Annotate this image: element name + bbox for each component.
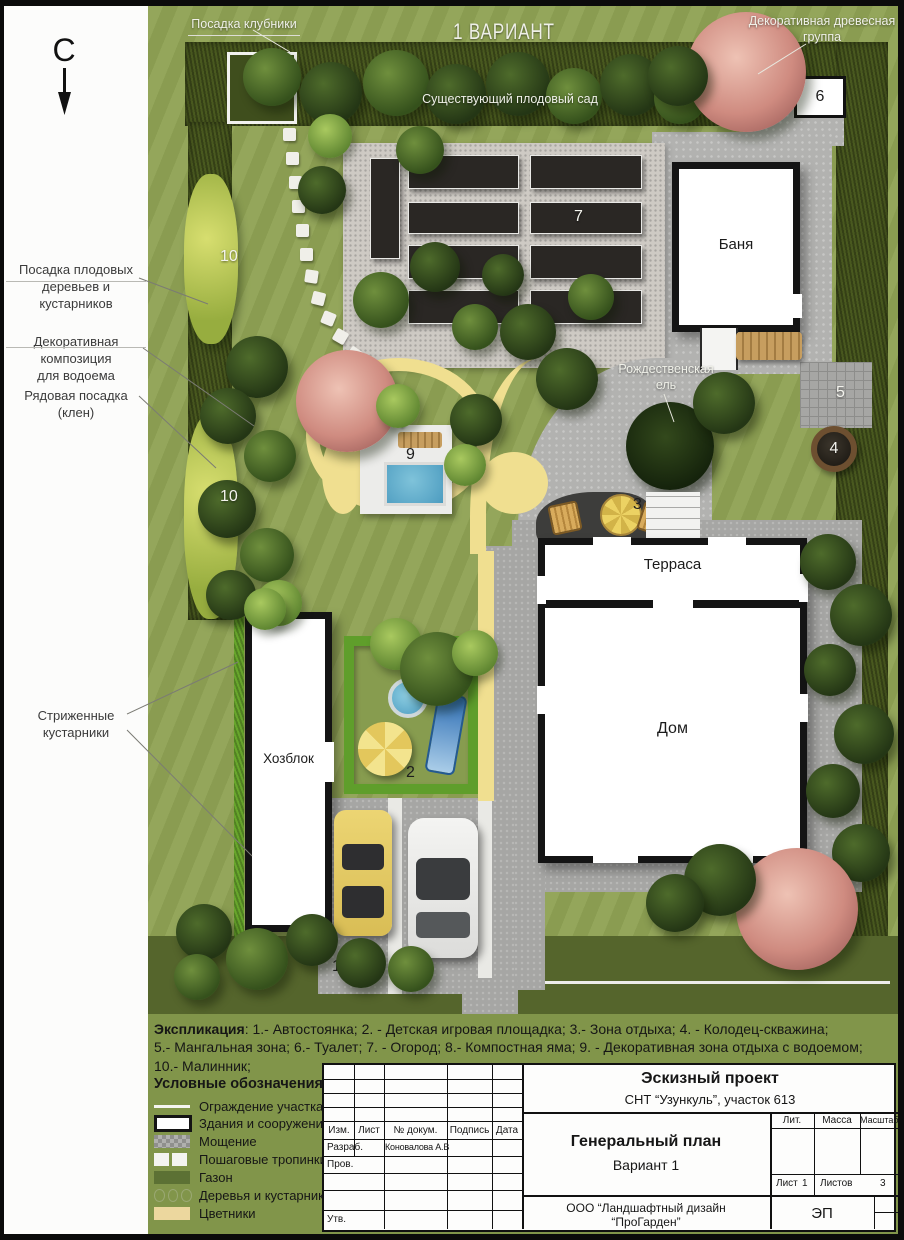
garden-bed — [408, 202, 519, 234]
margin-label-fruit-trees: Посадка плодовыхдеревьев и кустарников — [6, 262, 146, 313]
legend-item-buildings: Здания и сооружения — [154, 1115, 330, 1131]
company-line1: ООО “Ландшафтный дизайн — [522, 1201, 770, 1215]
paving-swatch-icon — [154, 1135, 192, 1148]
legend-item-trees: Деревья и кустарники — [154, 1187, 331, 1203]
stepping-stone — [320, 310, 337, 327]
explication-line2: 5.- Мангальная зона; 6.- Туалет; 7. - Ог… — [154, 1038, 894, 1056]
col-list: Лист — [354, 1125, 384, 1136]
hozblok-building — [245, 612, 332, 932]
trimmed-hedge-strip — [234, 600, 244, 940]
garden-bed — [370, 158, 400, 259]
marker-rest-zone: 3 — [633, 496, 642, 514]
tree — [452, 304, 498, 350]
scale-label: Масштаб — [860, 1115, 898, 1125]
tree — [648, 46, 708, 106]
project-object: СНТ “Узункуль”, участок 613 — [522, 1092, 898, 1107]
tree — [243, 48, 301, 106]
garden-bed — [530, 155, 642, 189]
tree — [834, 704, 894, 764]
house-building — [538, 538, 807, 863]
col-doc: № докум. — [384, 1125, 447, 1136]
stage-label: ЭП — [770, 1205, 874, 1222]
margin-rule — [6, 347, 146, 348]
stepping-stone — [296, 224, 309, 237]
house-window — [593, 854, 638, 863]
sheet-label: Лист — [776, 1178, 798, 1189]
tree — [646, 874, 704, 932]
marker-playground: 2 — [406, 764, 415, 782]
explication-heading: Экспликация — [154, 1021, 245, 1037]
stepping-stone — [300, 248, 313, 261]
drawing-sheet: С Посадка плодовыхдеревьев и кустарников… — [0, 0, 904, 1240]
variant-title: 1 ВАРИАНТ — [453, 18, 555, 46]
fence-swatch-icon — [154, 1100, 192, 1113]
legend-item-lawn: Газон — [154, 1169, 233, 1185]
marker-raspberry-top: 10 — [220, 248, 238, 266]
tree-group-label: Декоративная древеснаягруппа — [748, 14, 896, 45]
tree — [568, 274, 614, 320]
stepping-stone — [311, 291, 327, 307]
entrance-road — [462, 978, 518, 1014]
rest-chair — [547, 500, 583, 536]
row-razrab: Разраб. — [327, 1142, 363, 1153]
tree — [830, 584, 892, 646]
tree — [298, 166, 346, 214]
hozblok-label: Хозблок — [245, 751, 332, 766]
explication-line1: : 1.- Автостоянка; 2. - Детская игровая … — [245, 1021, 829, 1037]
project-type: Эскизный проект — [522, 1070, 898, 1088]
tree — [174, 954, 220, 1000]
legend-item-fence: Ограждение участка — [154, 1098, 323, 1114]
yellow-car — [334, 810, 392, 936]
col-date: Дата — [492, 1125, 522, 1136]
deck-bench — [398, 432, 442, 448]
house-label: Дом — [538, 720, 807, 738]
tree — [240, 528, 294, 582]
col-sign: Подпись — [447, 1125, 492, 1136]
orchard-label: Существующий плодовый сад — [400, 92, 620, 108]
marker-raspberry-bottom: 10 — [220, 488, 238, 506]
tree — [396, 126, 444, 174]
banya-window — [793, 294, 802, 318]
tree — [286, 914, 338, 966]
well: 4 — [811, 426, 857, 472]
fence-line — [516, 981, 890, 984]
marker-well: 4 — [830, 440, 839, 458]
pond — [384, 462, 446, 506]
master-plan: 8 6 7 Баня 5 4 9 — [148, 6, 898, 1014]
house-window — [537, 686, 546, 714]
tree — [244, 430, 296, 482]
stepping-stone — [283, 128, 296, 141]
parking-stripe — [478, 798, 492, 994]
tree — [176, 904, 232, 960]
tree — [353, 272, 409, 328]
sheets-label: Листов — [820, 1178, 853, 1189]
legend-item-paving: Мощение — [154, 1133, 257, 1149]
margin-label-maple-row: Рядовая посадка (клен) — [6, 388, 146, 422]
flowerbed-blob — [480, 452, 548, 514]
banya-label: Баня — [672, 236, 800, 253]
strawberry-label: Посадка клубники — [188, 17, 300, 36]
umbrella — [358, 722, 412, 776]
house-window — [593, 537, 631, 546]
spruce-label: Рождественскаяель — [610, 362, 722, 393]
drawing-title: Генеральный план — [522, 1133, 770, 1151]
sheets-num: 3 — [880, 1178, 886, 1189]
marker-garden: 7 — [574, 208, 583, 226]
variant-label: Вариант 1 — [522, 1157, 770, 1173]
white-car — [408, 818, 478, 958]
tree — [800, 534, 856, 590]
tree — [452, 630, 498, 676]
marker-bbq: 5 — [836, 384, 845, 402]
tree — [450, 394, 502, 446]
stepping-stone — [286, 152, 299, 165]
buildings-swatch-icon — [154, 1117, 192, 1130]
tree — [376, 384, 420, 428]
tree — [804, 644, 856, 696]
row-prov: Пров. — [327, 1159, 353, 1170]
terrace-label: Терраса — [538, 556, 807, 573]
lit-label: Лит. — [770, 1115, 814, 1126]
tree — [500, 304, 556, 360]
tree — [536, 348, 598, 410]
tree — [444, 444, 486, 486]
flowerbed-band — [478, 551, 494, 801]
tree — [806, 764, 860, 818]
col-izm: Изм. — [324, 1125, 354, 1136]
tree — [244, 588, 286, 630]
company-line2: “ПроГарден” — [522, 1215, 770, 1229]
tree — [336, 938, 386, 988]
lawn-swatch-icon — [154, 1171, 192, 1184]
margin-label-trimmed-shrubs: Стриженныекустарники — [6, 708, 146, 742]
razrab-name: Коновалова А.В — [385, 1142, 447, 1152]
north-letter: С — [44, 32, 84, 69]
tree — [226, 928, 288, 990]
tree — [308, 114, 352, 158]
tree — [482, 254, 524, 296]
legend-title: Условные обозначения — [154, 1076, 323, 1092]
banya-bench — [736, 332, 802, 360]
mass-label: Масса — [814, 1115, 860, 1126]
garden-bed — [530, 202, 642, 234]
stepping-stone — [304, 269, 319, 284]
terrace-door — [653, 600, 693, 608]
margin-label-pond-composition: Декоративная композициядля водоема — [6, 334, 146, 385]
terrace-steps — [646, 492, 700, 540]
north-arrow-icon — [56, 68, 73, 116]
flowers-swatch-icon — [154, 1207, 192, 1220]
margin-rule — [6, 281, 146, 282]
tree — [388, 946, 434, 992]
stepping-swatch-icon — [154, 1153, 192, 1166]
left-margin: С Посадка плодовыхдеревьев и кустарников… — [4, 6, 148, 1234]
house-window — [537, 576, 546, 604]
house-window — [799, 694, 808, 722]
marker-water-zone: 9 — [406, 446, 415, 464]
title-block: Изм. Лист № докум. Подпись Дата Разраб. … — [322, 1063, 896, 1232]
tree — [200, 388, 256, 444]
house-window — [708, 537, 746, 546]
legend-item-flowers: Цветники — [154, 1205, 256, 1221]
row-utv: Утв. — [327, 1214, 346, 1225]
legend-item-stepping: Пошаговые тропинки — [154, 1151, 327, 1167]
trees-swatch-icon — [154, 1189, 192, 1202]
sheet-num: 1 — [802, 1178, 808, 1189]
tree-pink — [736, 848, 858, 970]
tree — [410, 242, 460, 292]
marker-toilet: 6 — [816, 88, 825, 106]
